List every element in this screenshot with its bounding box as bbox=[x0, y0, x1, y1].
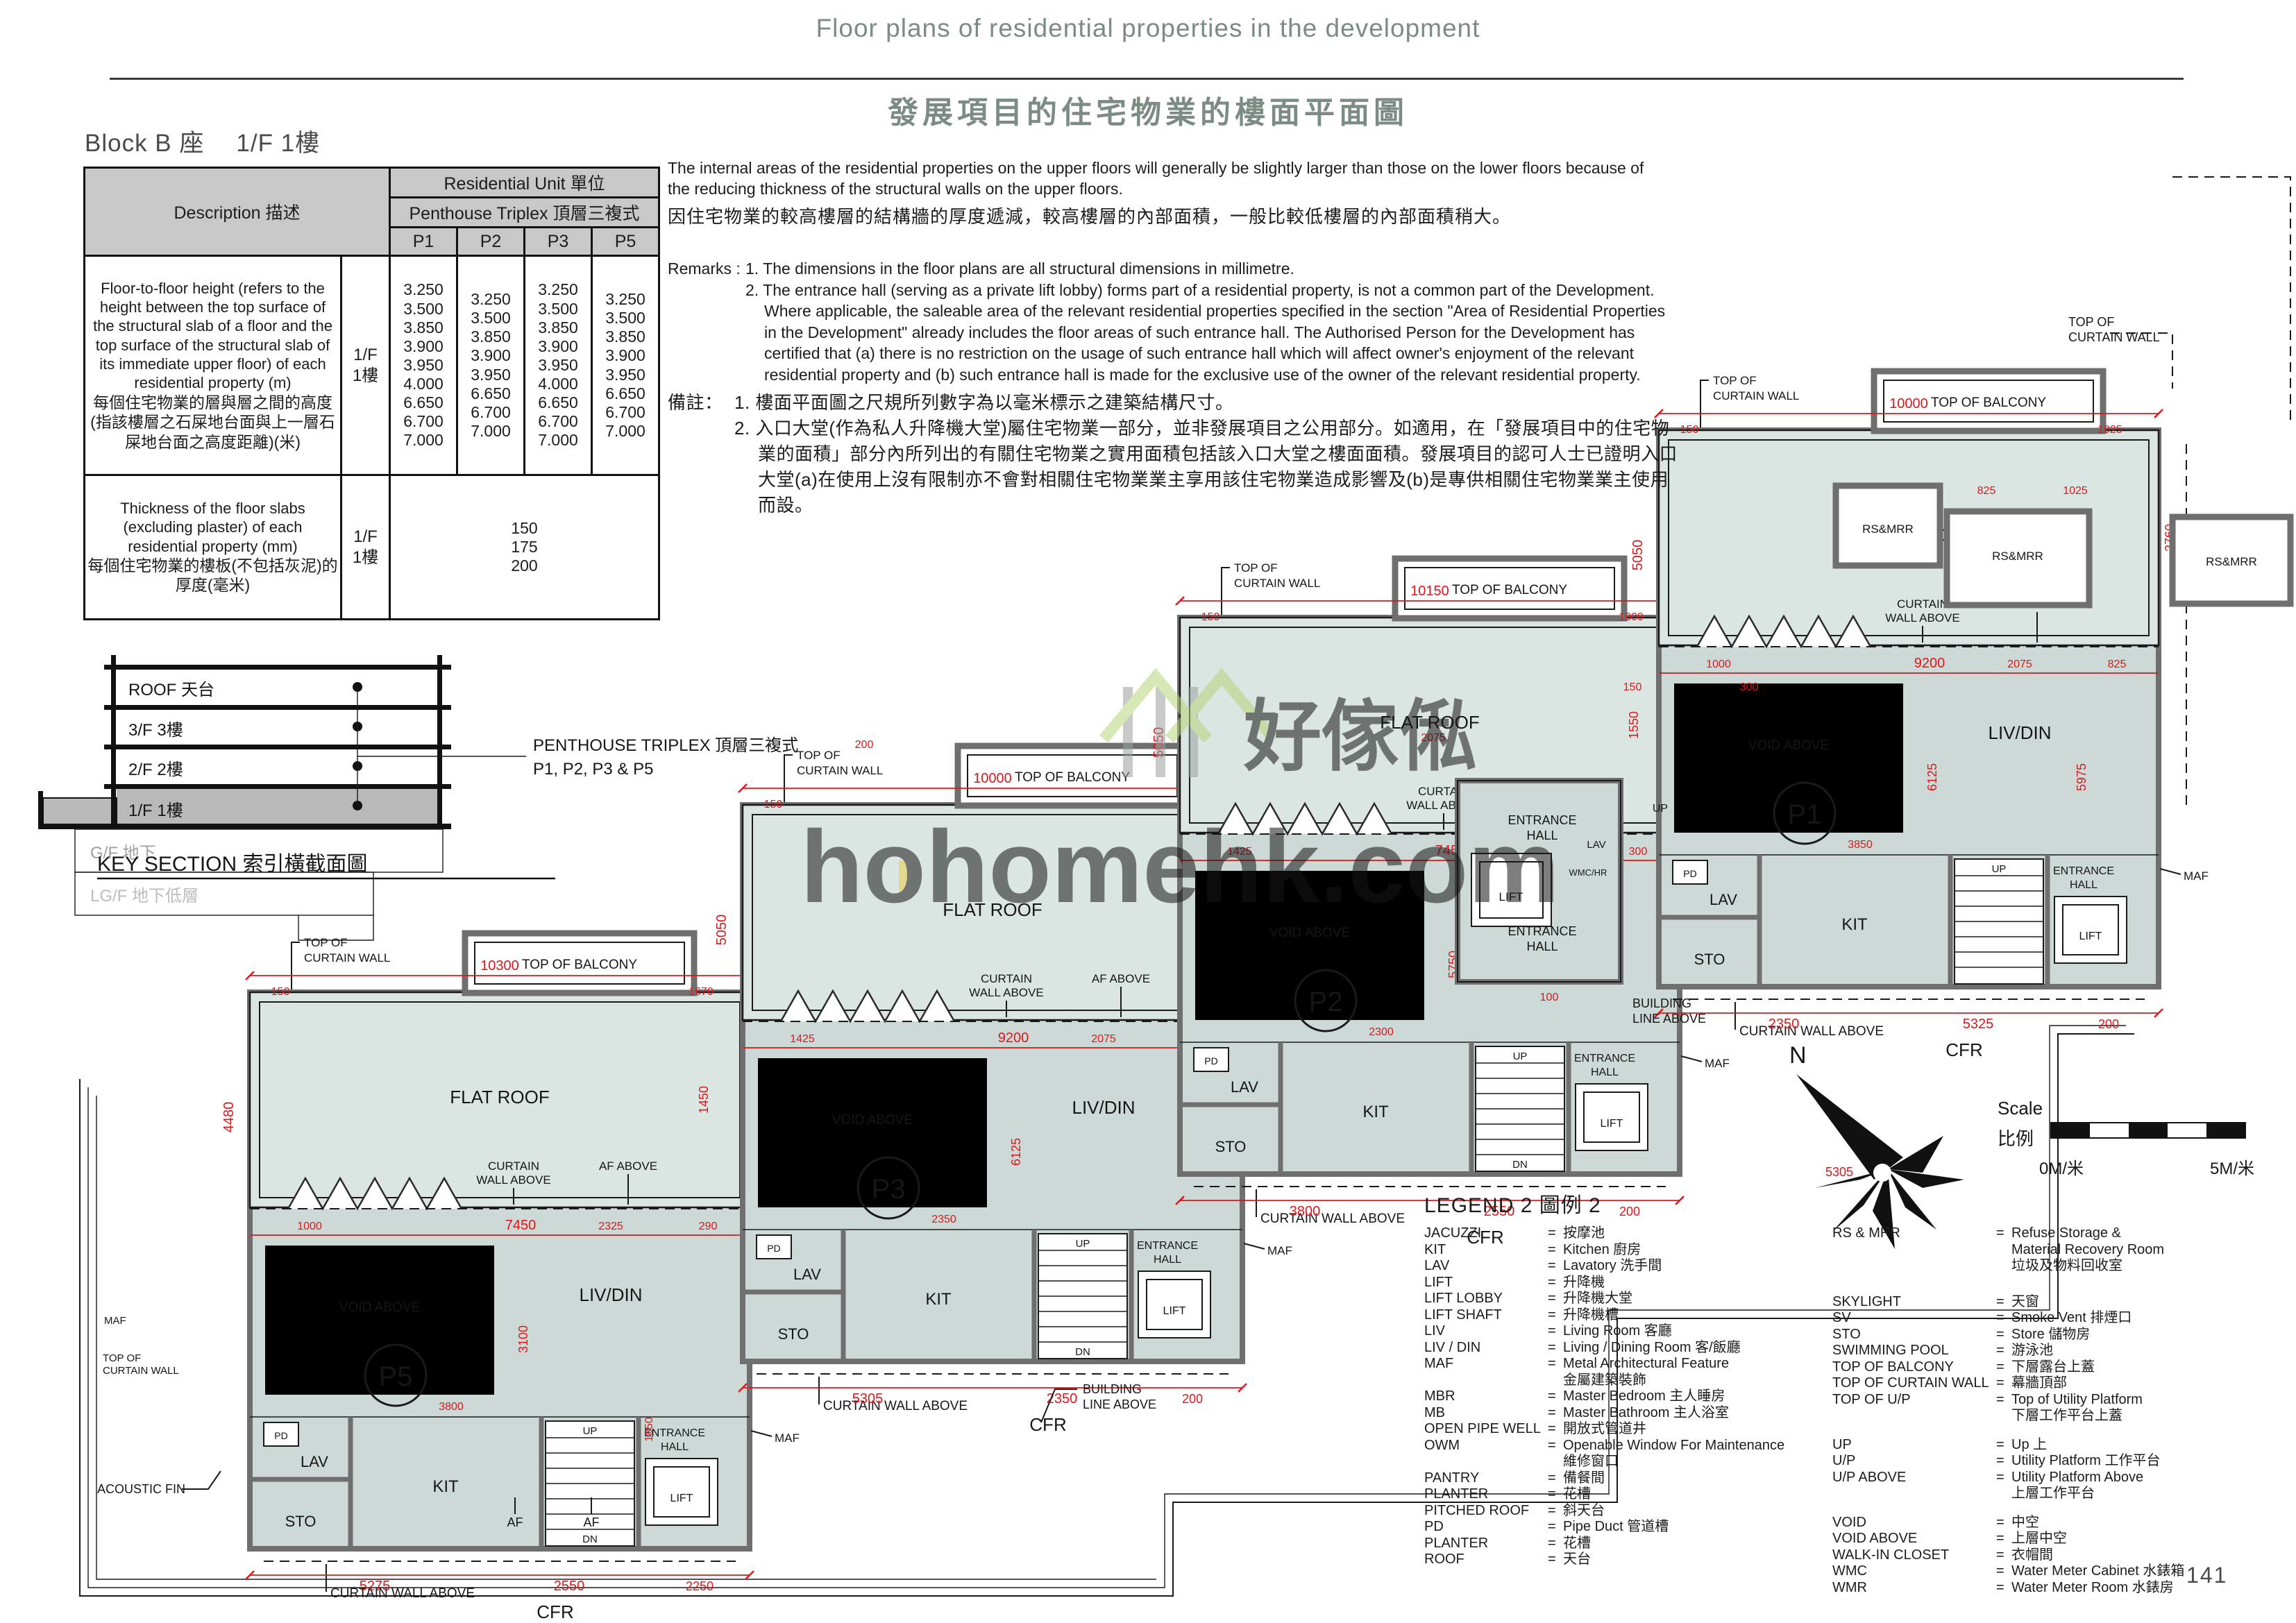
remarks-zh: 備註： 1. 樓面平面圖之尺規所列數字為以毫米標示之建築結構尺寸。 2. 入口大… bbox=[668, 390, 1678, 518]
svg-text:P1: P1 bbox=[1788, 799, 1822, 830]
legend-row: SWIMMING POOL=游泳池 bbox=[1832, 1343, 2221, 1359]
col-p3: P3 bbox=[525, 228, 592, 256]
svg-text:TOP OF BALCONY: TOP OF BALCONY bbox=[1015, 770, 1130, 785]
remarks-en: Remarks : 1. The dimensions in the floor… bbox=[668, 258, 1671, 385]
svg-text:LAV: LAV bbox=[1587, 839, 1605, 851]
svg-text:VOID ABOVE: VOID ABOVE bbox=[339, 1300, 420, 1315]
svg-text:5275: 5275 bbox=[360, 1579, 391, 1594]
svg-text:CURTAIN: CURTAIN bbox=[488, 1159, 539, 1173]
svg-text:P1, P2, P3 & P5: P1, P2, P3 & P5 bbox=[533, 760, 653, 779]
legend-row: KIT=Kitchen 廚房 bbox=[1424, 1242, 1832, 1259]
svg-text:KIT: KIT bbox=[432, 1477, 459, 1496]
svg-text:CURTAIN WALL: CURTAIN WALL bbox=[1713, 389, 1799, 402]
row2-description: Thickness of the floor slabs (excluding … bbox=[85, 475, 341, 620]
remark-zh-item-1: 1. 樓面平面圖之尺規所列數字為以毫米標示之建築結構尺寸。 bbox=[734, 390, 1678, 416]
scale-label-zh: 比例 bbox=[1998, 1128, 2034, 1149]
svg-text:LAV: LAV bbox=[301, 1453, 328, 1470]
svg-text:TOP OF: TOP OF bbox=[103, 1352, 141, 1364]
legend-row: LAV=Lavatory 洗手間 bbox=[1424, 1258, 1832, 1275]
svg-text:VOID ABOVE: VOID ABOVE bbox=[1269, 926, 1350, 940]
svg-text:3850: 3850 bbox=[1848, 839, 1873, 851]
legend-row: PLANTER=花槽 bbox=[1424, 1536, 1832, 1552]
legend-row: U/P=Utility Platform 工作平台 bbox=[1832, 1453, 2221, 1470]
unit-spec-table: Description 描述 Residential Unit 單位 Penth… bbox=[83, 167, 660, 620]
svg-text:TOP OF BALCONY: TOP OF BALCONY bbox=[1452, 583, 1567, 597]
intro-en: The internal areas of the residential pr… bbox=[668, 158, 1650, 200]
svg-text:1850: 1850 bbox=[643, 1417, 655, 1442]
scale-label-en: Scale bbox=[1998, 1098, 2043, 1119]
svg-text:3100: 3100 bbox=[516, 1325, 530, 1353]
svg-text:VOID ABOVE: VOID ABOVE bbox=[832, 1113, 913, 1128]
north-label: N bbox=[1789, 1042, 1807, 1069]
legend-row: JACUZZI=按摩池 bbox=[1424, 1225, 1832, 1242]
svg-text:6125: 6125 bbox=[1925, 763, 1939, 791]
svg-text:TOP OF: TOP OF bbox=[797, 749, 841, 762]
svg-text:200: 200 bbox=[2098, 1017, 2119, 1031]
svg-text:CURTAIN WALL ABOVE: CURTAIN WALL ABOVE bbox=[330, 1586, 475, 1601]
legend-row: TOP OF U/P=Top of Utility Platform 下層工作平… bbox=[1832, 1392, 2221, 1425]
svg-text:825: 825 bbox=[2108, 658, 2127, 670]
svg-text:MAF: MAF bbox=[2184, 869, 2209, 883]
svg-text:WMC/HR: WMC/HR bbox=[1569, 867, 1607, 878]
svg-text:KIT: KIT bbox=[1841, 915, 1868, 934]
svg-text:PD: PD bbox=[1683, 868, 1696, 879]
svg-text:P3: P3 bbox=[872, 1174, 906, 1205]
svg-text:1450: 1450 bbox=[697, 1086, 711, 1114]
legend-row: TOP OF CURTAIN WALL=幕牆頂部 bbox=[1832, 1375, 2221, 1392]
svg-text:UP: UP bbox=[1076, 1238, 1090, 1250]
legend-row: SV=Smoke Vent 排煙口 bbox=[1832, 1310, 2221, 1327]
svg-text:LAV: LAV bbox=[1231, 1078, 1258, 1096]
legend: LEGEND 2 圖例 2 JACUZZI=按摩池 KIT=Kitchen 廚房… bbox=[1424, 1188, 2243, 1596]
block-name: Block B 座 bbox=[85, 130, 204, 157]
row1-description: Floor-to-floor height (refers to the hei… bbox=[85, 256, 341, 475]
svg-text:CFR: CFR bbox=[537, 1601, 573, 1622]
legend-row: WMR=Water Meter Room 水錶房 bbox=[1832, 1580, 2221, 1597]
legend-row: MBR=Master Bedroom 主人睡房 bbox=[1424, 1388, 1832, 1405]
svg-text:LIFT: LIFT bbox=[1163, 1305, 1186, 1317]
svg-text:AF ABOVE: AF ABOVE bbox=[1092, 972, 1150, 985]
svg-text:UP: UP bbox=[1653, 803, 1668, 815]
svg-text:ENTRANCE: ENTRANCE bbox=[1574, 1053, 1635, 1064]
col-p2: P2 bbox=[457, 228, 525, 256]
svg-text:200: 200 bbox=[1182, 1392, 1203, 1406]
svg-text:STO: STO bbox=[1694, 951, 1725, 968]
svg-text:5305: 5305 bbox=[852, 1391, 884, 1407]
watermark-zh: 好傢俬 bbox=[1243, 693, 1477, 780]
svg-text:CURTAIN WALL ABOVE: CURTAIN WALL ABOVE bbox=[823, 1399, 968, 1413]
header-rule bbox=[110, 78, 2184, 80]
svg-text:1670: 1670 bbox=[689, 986, 714, 998]
row2-thickness-values: 150 175 200 bbox=[390, 475, 659, 620]
svg-text:LIV/DIN: LIV/DIN bbox=[1988, 722, 2051, 743]
legend-row: OPEN PIPE WELL=開放式管道井 bbox=[1424, 1421, 1832, 1438]
livdin-label: LIV/DIN bbox=[579, 1284, 642, 1305]
svg-text:MAF: MAF bbox=[775, 1431, 800, 1445]
svg-text:1550: 1550 bbox=[1627, 711, 1641, 739]
page-title-zh: 發展項目的住宅物業的樓面平面圖 bbox=[0, 87, 2296, 132]
top-of-curtain-wall-label: TOP OF bbox=[304, 936, 348, 949]
key-section: ROOF 天台 3/F 3樓 2/F 2樓 1/F 1樓 G/F 地下 LG/F… bbox=[38, 655, 798, 940]
legend-left-column: JACUZZI=按摩池 KIT=Kitchen 廚房 LAV=Lavatory … bbox=[1424, 1225, 1832, 1596]
col-p1: P1 bbox=[390, 228, 457, 256]
page: { "header":{"title_en":"Floor plans of r… bbox=[0, 0, 2296, 1623]
svg-text:150: 150 bbox=[271, 986, 290, 998]
svg-text:TOP OF: TOP OF bbox=[2068, 315, 2114, 329]
svg-text:2550: 2550 bbox=[554, 1579, 585, 1594]
svg-text:HALL: HALL bbox=[1526, 940, 1558, 953]
row1-p3-values: 3.250 3.500 3.850 3.900 3.950 4.000 6.65… bbox=[525, 256, 592, 475]
svg-text:5050: 5050 bbox=[714, 915, 729, 946]
svg-text:300: 300 bbox=[1740, 681, 1759, 693]
svg-text:200: 200 bbox=[855, 739, 874, 751]
svg-text:BUILDING: BUILDING bbox=[1083, 1382, 1142, 1396]
row1-p5-values: 3.250 3.500 3.850 3.900 3.950 6.650 6.70… bbox=[592, 256, 659, 475]
key-section-title: KEY SECTION 索引橫截面圖 bbox=[97, 853, 368, 876]
svg-text:CFR: CFR bbox=[1029, 1414, 1066, 1435]
top-of-balcony-label: TOP OF BALCONY bbox=[522, 958, 637, 972]
svg-text:VOID ABOVE: VOID ABOVE bbox=[1748, 738, 1829, 753]
remark-item-2: 2. The entrance hall (serving as a priva… bbox=[745, 280, 1671, 386]
svg-text:290: 290 bbox=[699, 1221, 718, 1232]
legend-right-column: RS & MRR=Refuse Storage & Material Recov… bbox=[1832, 1225, 2221, 1596]
legend-row: LIV / DIN=Living / Dining Room 客/飯廳 bbox=[1424, 1340, 1832, 1357]
legend-row: PLANTER=花槽 bbox=[1424, 1486, 1832, 1503]
svg-text:3/F 3樓: 3/F 3樓 bbox=[128, 721, 183, 740]
watermark-en: hohomehk.com bbox=[800, 810, 1560, 924]
svg-text:2350: 2350 bbox=[1769, 1017, 1800, 1032]
svg-text:KIT: KIT bbox=[925, 1290, 952, 1309]
col-header-type: Penthouse Triplex 頂層三複式 bbox=[390, 198, 659, 228]
legend-row: LIFT SHAFT=升降機槽 bbox=[1424, 1307, 1832, 1324]
svg-text:CFR: CFR bbox=[1945, 1039, 1982, 1060]
svg-text:3800: 3800 bbox=[1290, 1204, 1321, 1219]
block-floor: 1/F 1樓 bbox=[236, 130, 320, 157]
row1-floor: 1/F 1樓 bbox=[341, 256, 390, 475]
svg-text:RS&MRR: RS&MRR bbox=[2206, 555, 2257, 568]
svg-text:HALL: HALL bbox=[1591, 1067, 1619, 1078]
intro-paragraph: The internal areas of the residential pr… bbox=[668, 158, 1650, 229]
svg-text:150: 150 bbox=[1680, 424, 1699, 436]
svg-text:ENTRANCE: ENTRANCE bbox=[1137, 1240, 1198, 1252]
svg-text:10000: 10000 bbox=[1889, 396, 1928, 411]
svg-text:5050: 5050 bbox=[1630, 540, 1646, 571]
svg-text:2250: 2250 bbox=[686, 1579, 714, 1593]
svg-text:AF ABOVE: AF ABOVE bbox=[599, 1159, 657, 1173]
svg-text:CURTAIN: CURTAIN bbox=[1897, 597, 1948, 611]
svg-text:LAV: LAV bbox=[793, 1266, 821, 1283]
svg-text:2075: 2075 bbox=[2007, 658, 2032, 670]
svg-text:CURTAIN WALL: CURTAIN WALL bbox=[1234, 577, 1320, 590]
unit-p1: TOP OF BALCONY TOP OF CURTAIN WALL FLAT … bbox=[1630, 371, 2209, 1060]
svg-text:STO: STO bbox=[778, 1325, 809, 1343]
legend-row: U/P ABOVE=Utility Platform Above 上層工作平台 bbox=[1832, 1470, 2221, 1502]
legend-row: TOP OF BALCONY=下層露台上蓋 bbox=[1832, 1359, 2221, 1376]
legend-row: PANTRY=備餐間 bbox=[1424, 1470, 1832, 1487]
legend-row: MAF=Metal Architectural Feature 金屬建築裝飾 bbox=[1424, 1356, 1832, 1388]
svg-text:5305: 5305 bbox=[1825, 1165, 1853, 1179]
scale-from: 0M/米 bbox=[2039, 1159, 2084, 1178]
svg-text:300: 300 bbox=[1629, 846, 1648, 858]
svg-text:2/F 2樓: 2/F 2樓 bbox=[128, 760, 183, 779]
svg-text:RS&MRR: RS&MRR bbox=[1992, 550, 2043, 563]
svg-text:BUILDING: BUILDING bbox=[1632, 996, 1691, 1010]
row1-p2-values: 3.250 3.500 3.850 3.900 3.950 6.650 6.70… bbox=[457, 256, 525, 475]
svg-text:10150: 10150 bbox=[1410, 584, 1449, 599]
svg-text:UP: UP bbox=[1992, 863, 2007, 875]
legend-row: ROOF=天台 bbox=[1424, 1552, 1832, 1568]
intro-zh: 因住宅物業的較高樓層的結構牆的厚度遞減，較高樓層的內部面積，一般比較低樓層的內部… bbox=[668, 205, 1650, 229]
col-header-description: Description 描述 bbox=[85, 168, 390, 256]
svg-text:STO: STO bbox=[1215, 1138, 1247, 1155]
legend-row: LIFT LOBBY=升降機大堂 bbox=[1424, 1291, 1832, 1307]
svg-text:PD: PD bbox=[1204, 1055, 1217, 1067]
legend-row: UP=Up 上 bbox=[1832, 1437, 2221, 1454]
page-number: 141 bbox=[2186, 1563, 2227, 1588]
svg-text:TOP OF: TOP OF bbox=[1713, 374, 1757, 387]
svg-text:150: 150 bbox=[764, 799, 783, 810]
svg-text:7450: 7450 bbox=[505, 1218, 537, 1233]
svg-text:9200: 9200 bbox=[1914, 656, 1945, 671]
svg-text:CURTAIN WALL: CURTAIN WALL bbox=[103, 1365, 179, 1377]
svg-text:ENTRANCE: ENTRANCE bbox=[1508, 924, 1576, 938]
svg-text:PD: PD bbox=[767, 1243, 780, 1254]
flat-roof-label: FLAT ROOF bbox=[450, 1087, 550, 1107]
legend-title: LEGEND 2 圖例 2 bbox=[1424, 1188, 2243, 1218]
legend-row: LIV=Living Room 客廳 bbox=[1424, 1323, 1832, 1340]
svg-text:PD: PD bbox=[274, 1430, 287, 1441]
svg-text:LIFT: LIFT bbox=[670, 1493, 693, 1504]
remarks-label: Remarks : bbox=[668, 258, 745, 385]
svg-text:DN: DN bbox=[1512, 1159, 1528, 1171]
svg-text:UP: UP bbox=[1513, 1051, 1528, 1062]
svg-text:2350: 2350 bbox=[931, 1214, 956, 1225]
legend-row: RS & MRR=Refuse Storage & Material Recov… bbox=[1832, 1225, 2221, 1275]
svg-text:9200: 9200 bbox=[998, 1030, 1029, 1046]
legend-row: WMC=Water Meter Cabinet 水錶箱 bbox=[1832, 1563, 2221, 1580]
svg-text:LAV: LAV bbox=[1710, 891, 1737, 908]
svg-text:AF: AF bbox=[583, 1515, 599, 1529]
unit-id: P5 bbox=[379, 1361, 413, 1392]
svg-text:DN: DN bbox=[582, 1533, 598, 1545]
svg-text:1000: 1000 bbox=[297, 1221, 322, 1232]
legend-row: PD=Pipe Duct 管道槽 bbox=[1424, 1519, 1832, 1536]
svg-text:CURTAIN WALL: CURTAIN WALL bbox=[304, 951, 390, 965]
svg-text:ACOUSTIC FIN: ACOUSTIC FIN bbox=[97, 1482, 185, 1496]
svg-text:MAF: MAF bbox=[104, 1315, 126, 1327]
svg-text:CURTAIN WALL: CURTAIN WALL bbox=[2068, 330, 2160, 344]
legend-row: VOID ABOVE=上層中空 bbox=[1832, 1531, 2221, 1547]
svg-text:2325: 2325 bbox=[598, 1221, 623, 1232]
legend-row: LIFT=升降機 bbox=[1424, 1275, 1832, 1291]
svg-text:3800: 3800 bbox=[439, 1401, 464, 1413]
svg-text:1025: 1025 bbox=[2097, 424, 2122, 436]
svg-text:KIT: KIT bbox=[1362, 1103, 1389, 1121]
svg-text:CURTAIN WALL: CURTAIN WALL bbox=[797, 764, 883, 777]
svg-text:10000: 10000 bbox=[973, 771, 1012, 786]
svg-text:2300: 2300 bbox=[1369, 1026, 1394, 1038]
key-section-callout: PENTHOUSE TRIPLEX 頂層三複式 bbox=[533, 736, 798, 755]
block-floor-title: Block B 座1/F 1樓 bbox=[85, 124, 320, 159]
svg-text:P2: P2 bbox=[1309, 987, 1343, 1017]
svg-text:CURTAIN WALL ABOVE: CURTAIN WALL ABOVE bbox=[1260, 1212, 1405, 1226]
remark-item-1: 1. The dimensions in the floor plans are… bbox=[745, 258, 1671, 280]
svg-text:HALL: HALL bbox=[2070, 879, 2097, 891]
svg-text:1025: 1025 bbox=[2063, 485, 2088, 497]
svg-text:6125: 6125 bbox=[1009, 1138, 1023, 1166]
page-title: Floor plans of residential properties in… bbox=[0, 14, 2296, 43]
svg-text:150: 150 bbox=[1623, 681, 1642, 693]
svg-text:LIV/DIN: LIV/DIN bbox=[1072, 1097, 1135, 1118]
svg-text:100: 100 bbox=[1540, 992, 1559, 1003]
svg-text:5975: 5975 bbox=[2075, 763, 2088, 791]
svg-text:UP: UP bbox=[583, 1425, 598, 1437]
svg-text:HALL: HALL bbox=[1154, 1254, 1181, 1266]
svg-text:CURTAIN WALL ABOVE: CURTAIN WALL ABOVE bbox=[1739, 1024, 1884, 1039]
svg-text:LIFT: LIFT bbox=[1601, 1118, 1623, 1130]
svg-text:WALL ABOVE: WALL ABOVE bbox=[1885, 611, 1959, 624]
svg-text:TOP OF BALCONY: TOP OF BALCONY bbox=[1931, 396, 2046, 410]
legend-row: STO=Store 儲物房 bbox=[1832, 1327, 2221, 1343]
svg-text:1/F 1樓: 1/F 1樓 bbox=[128, 801, 183, 820]
svg-text:AF: AF bbox=[507, 1515, 523, 1529]
svg-text:ENTRANCE: ENTRANCE bbox=[2053, 865, 2114, 877]
remark-zh-item-2: 2. 入口大堂(作為私人升降機大堂)屬住宅物業一部分，並非發展項目之公用部分。如… bbox=[734, 416, 1678, 518]
svg-text:CURTAIN: CURTAIN bbox=[981, 972, 1032, 985]
legend-row: MB=Master Bathroom 主人浴室 bbox=[1424, 1405, 1832, 1422]
row2-floor: 1/F 1樓 bbox=[341, 475, 390, 620]
svg-text:MAF: MAF bbox=[1267, 1244, 1292, 1257]
svg-text:HALL: HALL bbox=[661, 1441, 689, 1453]
svg-text:TOP OF: TOP OF bbox=[1234, 561, 1278, 575]
scale-to: 5M/米 bbox=[2210, 1159, 2254, 1178]
svg-text:RS&MRR: RS&MRR bbox=[1862, 522, 1914, 536]
svg-text:LIFT: LIFT bbox=[2079, 931, 2102, 942]
svg-text:150: 150 bbox=[1201, 611, 1220, 623]
col-header-unit: Residential Unit 單位 bbox=[390, 168, 659, 198]
legend-row: PITCHED ROOF=斜天台 bbox=[1424, 1503, 1832, 1520]
svg-text:LINE ABOVE: LINE ABOVE bbox=[1083, 1397, 1156, 1411]
col-p5: P5 bbox=[592, 228, 659, 256]
svg-text:WALL ABOVE: WALL ABOVE bbox=[969, 986, 1043, 999]
legend-row: SKYLIGHT=天窗 bbox=[1832, 1294, 2221, 1311]
svg-text:1425: 1425 bbox=[790, 1033, 815, 1045]
svg-text:ROOF 天台: ROOF 天台 bbox=[128, 681, 214, 699]
svg-text:WALL ABOVE: WALL ABOVE bbox=[476, 1173, 550, 1187]
legend-row: VOID=中空 bbox=[1832, 1515, 2221, 1531]
svg-text:DN: DN bbox=[1075, 1346, 1090, 1358]
svg-text:825: 825 bbox=[1977, 485, 1996, 497]
svg-text:5325: 5325 bbox=[1963, 1017, 1994, 1032]
svg-text:2075: 2075 bbox=[1091, 1033, 1116, 1045]
svg-text:LINE ABOVE: LINE ABOVE bbox=[1632, 1012, 1706, 1026]
svg-text:LG/F 地下低層: LG/F 地下低層 bbox=[90, 887, 199, 906]
row1-p1-values: 3.250 3.500 3.850 3.900 3.950 4.000 6.65… bbox=[390, 256, 457, 475]
legend-row: OWM=Openable Window For Maintenance 維修窗口 bbox=[1424, 1438, 1832, 1470]
scale-bar: Scale 比例 0M/米 5M/米 bbox=[1998, 1098, 2254, 1178]
dim-label: 10300 bbox=[480, 958, 519, 974]
svg-text:1000: 1000 bbox=[1619, 611, 1644, 623]
svg-text:1000: 1000 bbox=[1706, 658, 1731, 670]
legend-row: WALK-IN CLOSET=衣帽間 bbox=[1832, 1547, 2221, 1564]
svg-text:4480: 4480 bbox=[221, 1102, 237, 1133]
svg-text:STO: STO bbox=[285, 1513, 316, 1530]
remarks-zh-label: 備註： bbox=[668, 390, 734, 518]
svg-text:MAF: MAF bbox=[1705, 1057, 1730, 1070]
